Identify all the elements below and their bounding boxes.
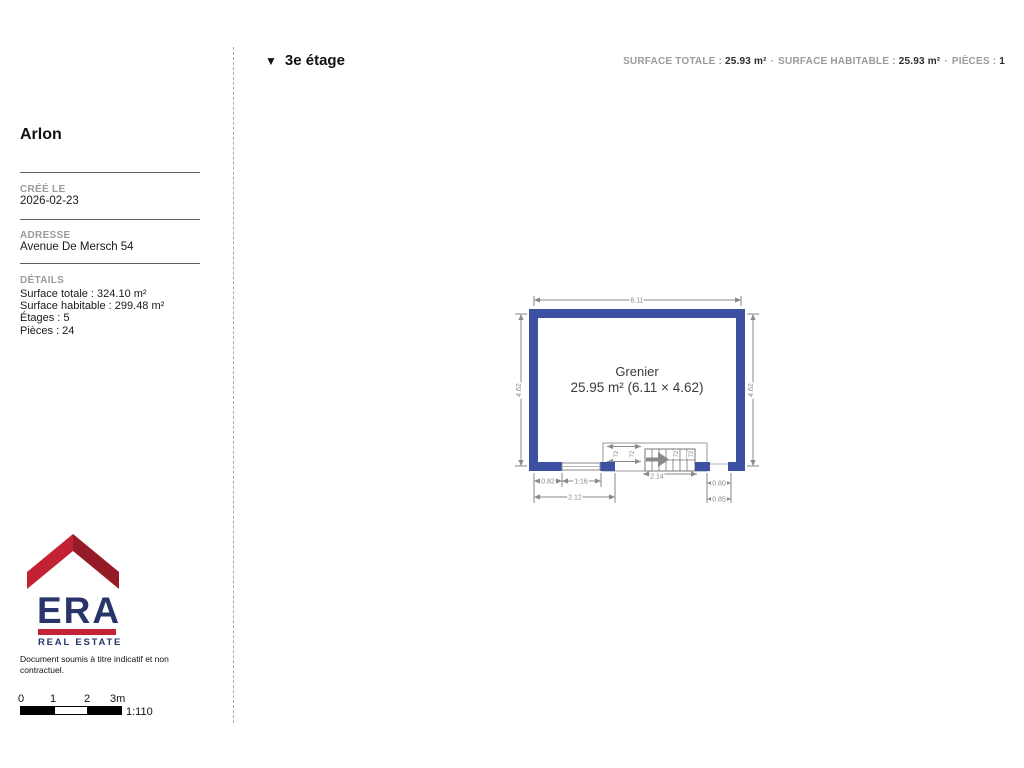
created-label: CRÉÉ LE (20, 184, 65, 195)
dim-bottom-left-2: 1.16 (574, 479, 588, 486)
detail-surface-habitable: Surface habitable : 299.48 m² (20, 300, 164, 312)
stats-separator: · (771, 56, 775, 67)
scale-bar (20, 706, 122, 715)
address-label: ADRESSE (20, 230, 70, 241)
detail-pieces: Pièces : 24 (20, 325, 74, 337)
floor-marker-icon: ▼ (265, 55, 277, 67)
pieces-value: 1 (999, 56, 1005, 67)
detail-etages: Étages : 5 (20, 312, 70, 324)
property-city-title: Arlon (20, 126, 62, 144)
sidebar-divider (20, 219, 200, 220)
era-logo-bar (38, 629, 116, 635)
dim-bottom-right-2: 0.85 (712, 497, 726, 504)
scale-tick-0: 0 (18, 693, 24, 705)
scale-segment-black (21, 707, 54, 714)
sidebar-divider (20, 263, 200, 264)
dim-stair-step-4: 72 (689, 450, 695, 457)
room-area: 25.95 m² (6.11 × 4.62) (571, 380, 704, 395)
vertical-dotted-divider (233, 47, 234, 723)
scale-ratio: 1:110 (126, 706, 153, 718)
room-name: Grenier (615, 364, 659, 379)
floor-title: 3e étage (285, 52, 345, 69)
sidebar-divider (20, 172, 200, 173)
dim-left: 4.62 (516, 383, 523, 397)
stair-direction-arrow (646, 458, 658, 462)
dim-bottom-left-1: 0.82 (541, 479, 555, 486)
dimension-lines (515, 296, 759, 503)
dim-top: 6.11 (630, 298, 643, 305)
floor-header: ▼ 3e étage (265, 52, 345, 69)
address-value: Avenue De Mersch 54 (20, 241, 134, 253)
surface-stats: SURFACE TOTALE :25.93 m²·SURFACE HABITAB… (623, 56, 1005, 67)
dim-right: 4.62 (748, 383, 755, 397)
disclaimer-text: Document soumis à titre indicatif et non… (20, 654, 175, 675)
era-logo-text: ERA (37, 592, 121, 629)
dim-bottom-right-1: 0.80 (712, 481, 726, 488)
scale-tick-3m: 3m (110, 693, 125, 705)
era-logo-tagline: REAL ESTATE (38, 637, 122, 648)
pieces-label: PIÈCES : (952, 56, 996, 67)
created-value: 2026-02-23 (20, 195, 79, 207)
era-roof-icon (25, 531, 121, 591)
scale-segment-black (88, 707, 121, 714)
scale-tick-1: 1 (50, 693, 56, 705)
scale-segment-white (54, 707, 89, 714)
surface-habitable-value: 25.93 m² (899, 56, 941, 67)
stats-separator: · (944, 56, 948, 67)
surface-totale-value: 25.93 m² (725, 56, 767, 67)
dim-bottom-left-total: 2.12 (568, 495, 582, 502)
details-label: DÉTAILS (20, 275, 64, 286)
scale-tick-2: 2 (84, 693, 90, 705)
window (562, 463, 600, 470)
surface-totale-label: SURFACE TOTALE : (623, 56, 722, 67)
dim-stair-step-2: 72 (630, 450, 636, 457)
dim-stair-step-1: 72 (614, 450, 620, 457)
detail-surface-totale: Surface totale : 324.10 m² (20, 288, 147, 300)
dim-stair-width: 2.14 (650, 474, 664, 481)
surface-habitable-label: SURFACE HABITABLE : (778, 56, 896, 67)
floorplan: 6.11 4.62 4.62 0.82 1.16 2.12 0.80 0.85 … (505, 288, 775, 510)
dim-stair-step-3: 72 (674, 450, 680, 457)
